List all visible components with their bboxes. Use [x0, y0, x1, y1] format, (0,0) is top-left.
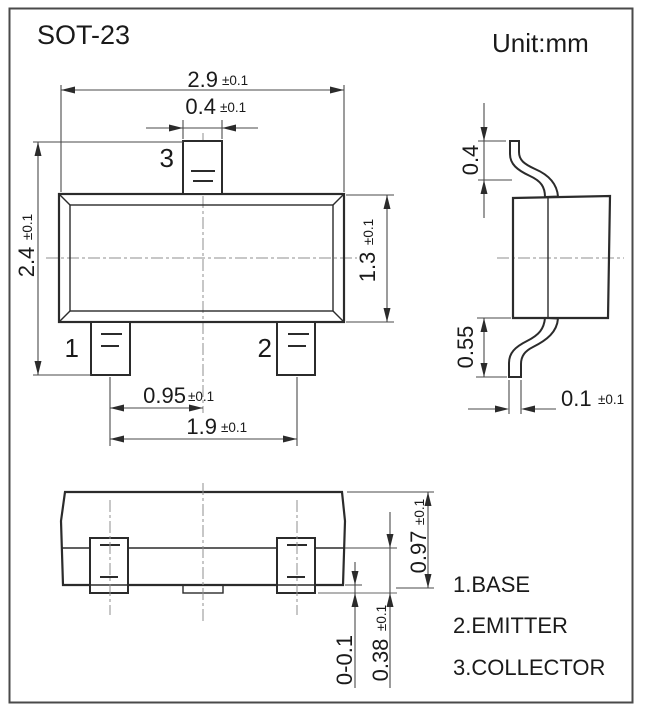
side-bottom-lead — [509, 318, 558, 377]
dim-standoff: 0-0.1 — [332, 562, 359, 688]
dim-lead-foot: 0.55 — [453, 318, 511, 377]
side-top-lead — [510, 141, 558, 197]
pin-2-lead — [277, 322, 315, 375]
bevel-top-left — [59, 194, 70, 205]
front-view: 0.97 ±0.1 0.38 ±0.1 0-0.1 — [61, 483, 434, 688]
unit-label: Unit:mm — [492, 28, 589, 58]
pin-3-lead — [183, 141, 222, 194]
top-view: 3 1 2 2.9 ±0.1 0.4 ±0.1 — [14, 67, 394, 446]
pin-1-label: 1 — [65, 333, 79, 363]
dim-value: 1.9 — [186, 414, 217, 439]
dim-tolerance: ±0.1 — [374, 605, 389, 631]
dim-value: 0.38 — [368, 639, 393, 682]
dim-tolerance: ±0.1 — [222, 73, 248, 88]
dim-value: 0.4 — [185, 94, 216, 119]
dim-lead-thickness: 0.1 ±0.1 — [468, 380, 624, 414]
pin-3-label: 3 — [160, 143, 174, 173]
side-view: 0.4 0.55 0.1 ±0.1 — [453, 103, 624, 414]
dim-tolerance: ±0.1 — [188, 389, 214, 404]
legend-item-base: 1.BASE — [453, 572, 530, 597]
dim-value: 0.95 — [143, 383, 186, 408]
dim-lead-tip: 0.4 — [458, 103, 512, 218]
pin-legend: 1.BASE 2.EMITTER 3.COLLECTOR — [453, 572, 605, 680]
dim-lead-width: 0.4 ±0.1 — [146, 94, 258, 139]
bevel-bottom-right — [333, 311, 344, 322]
pin-1-lead — [91, 322, 130, 375]
dim-tolerance: ±0.1 — [598, 392, 624, 407]
dim-tolerance: ±0.1 — [221, 420, 247, 435]
dim-value: 0.55 — [453, 326, 478, 369]
legend-item-emitter: 2.EMITTER — [453, 613, 568, 638]
side-body — [513, 196, 610, 318]
dim-lead-span: 1.9 ±0.1 — [110, 414, 297, 443]
dim-tolerance: ±0.1 — [412, 499, 427, 525]
bevel-bottom-left — [59, 311, 70, 322]
dim-body-width: 1.3 ±0.1 — [346, 195, 394, 322]
dim-value: 0.4 — [458, 145, 483, 176]
dim-tolerance: ±0.1 — [361, 219, 376, 245]
dim-tolerance: ±0.1 — [20, 214, 35, 240]
dim-value: 0-0.1 — [332, 635, 357, 685]
bevel-top-right — [333, 194, 344, 205]
datasheet-page: SOT-23 Unit:mm 3 1 2 — [0, 0, 645, 715]
dim-value: 2.4 — [14, 247, 39, 278]
dim-value: 0.97 — [406, 531, 431, 574]
dim-tolerance: ±0.1 — [220, 100, 246, 115]
legend-item-collector: 3.COLLECTOR — [453, 655, 605, 680]
package-outline-drawing: SOT-23 Unit:mm 3 1 2 — [0, 0, 645, 715]
dim-value: 1.3 — [355, 252, 380, 283]
page-title: SOT-23 — [37, 20, 130, 50]
dim-front-lead-height: 0.38 ±0.1 — [368, 512, 394, 688]
pin-2-label: 2 — [258, 333, 272, 363]
dim-value: 2.9 — [187, 67, 218, 92]
dim-value: 0.1 — [561, 386, 592, 411]
